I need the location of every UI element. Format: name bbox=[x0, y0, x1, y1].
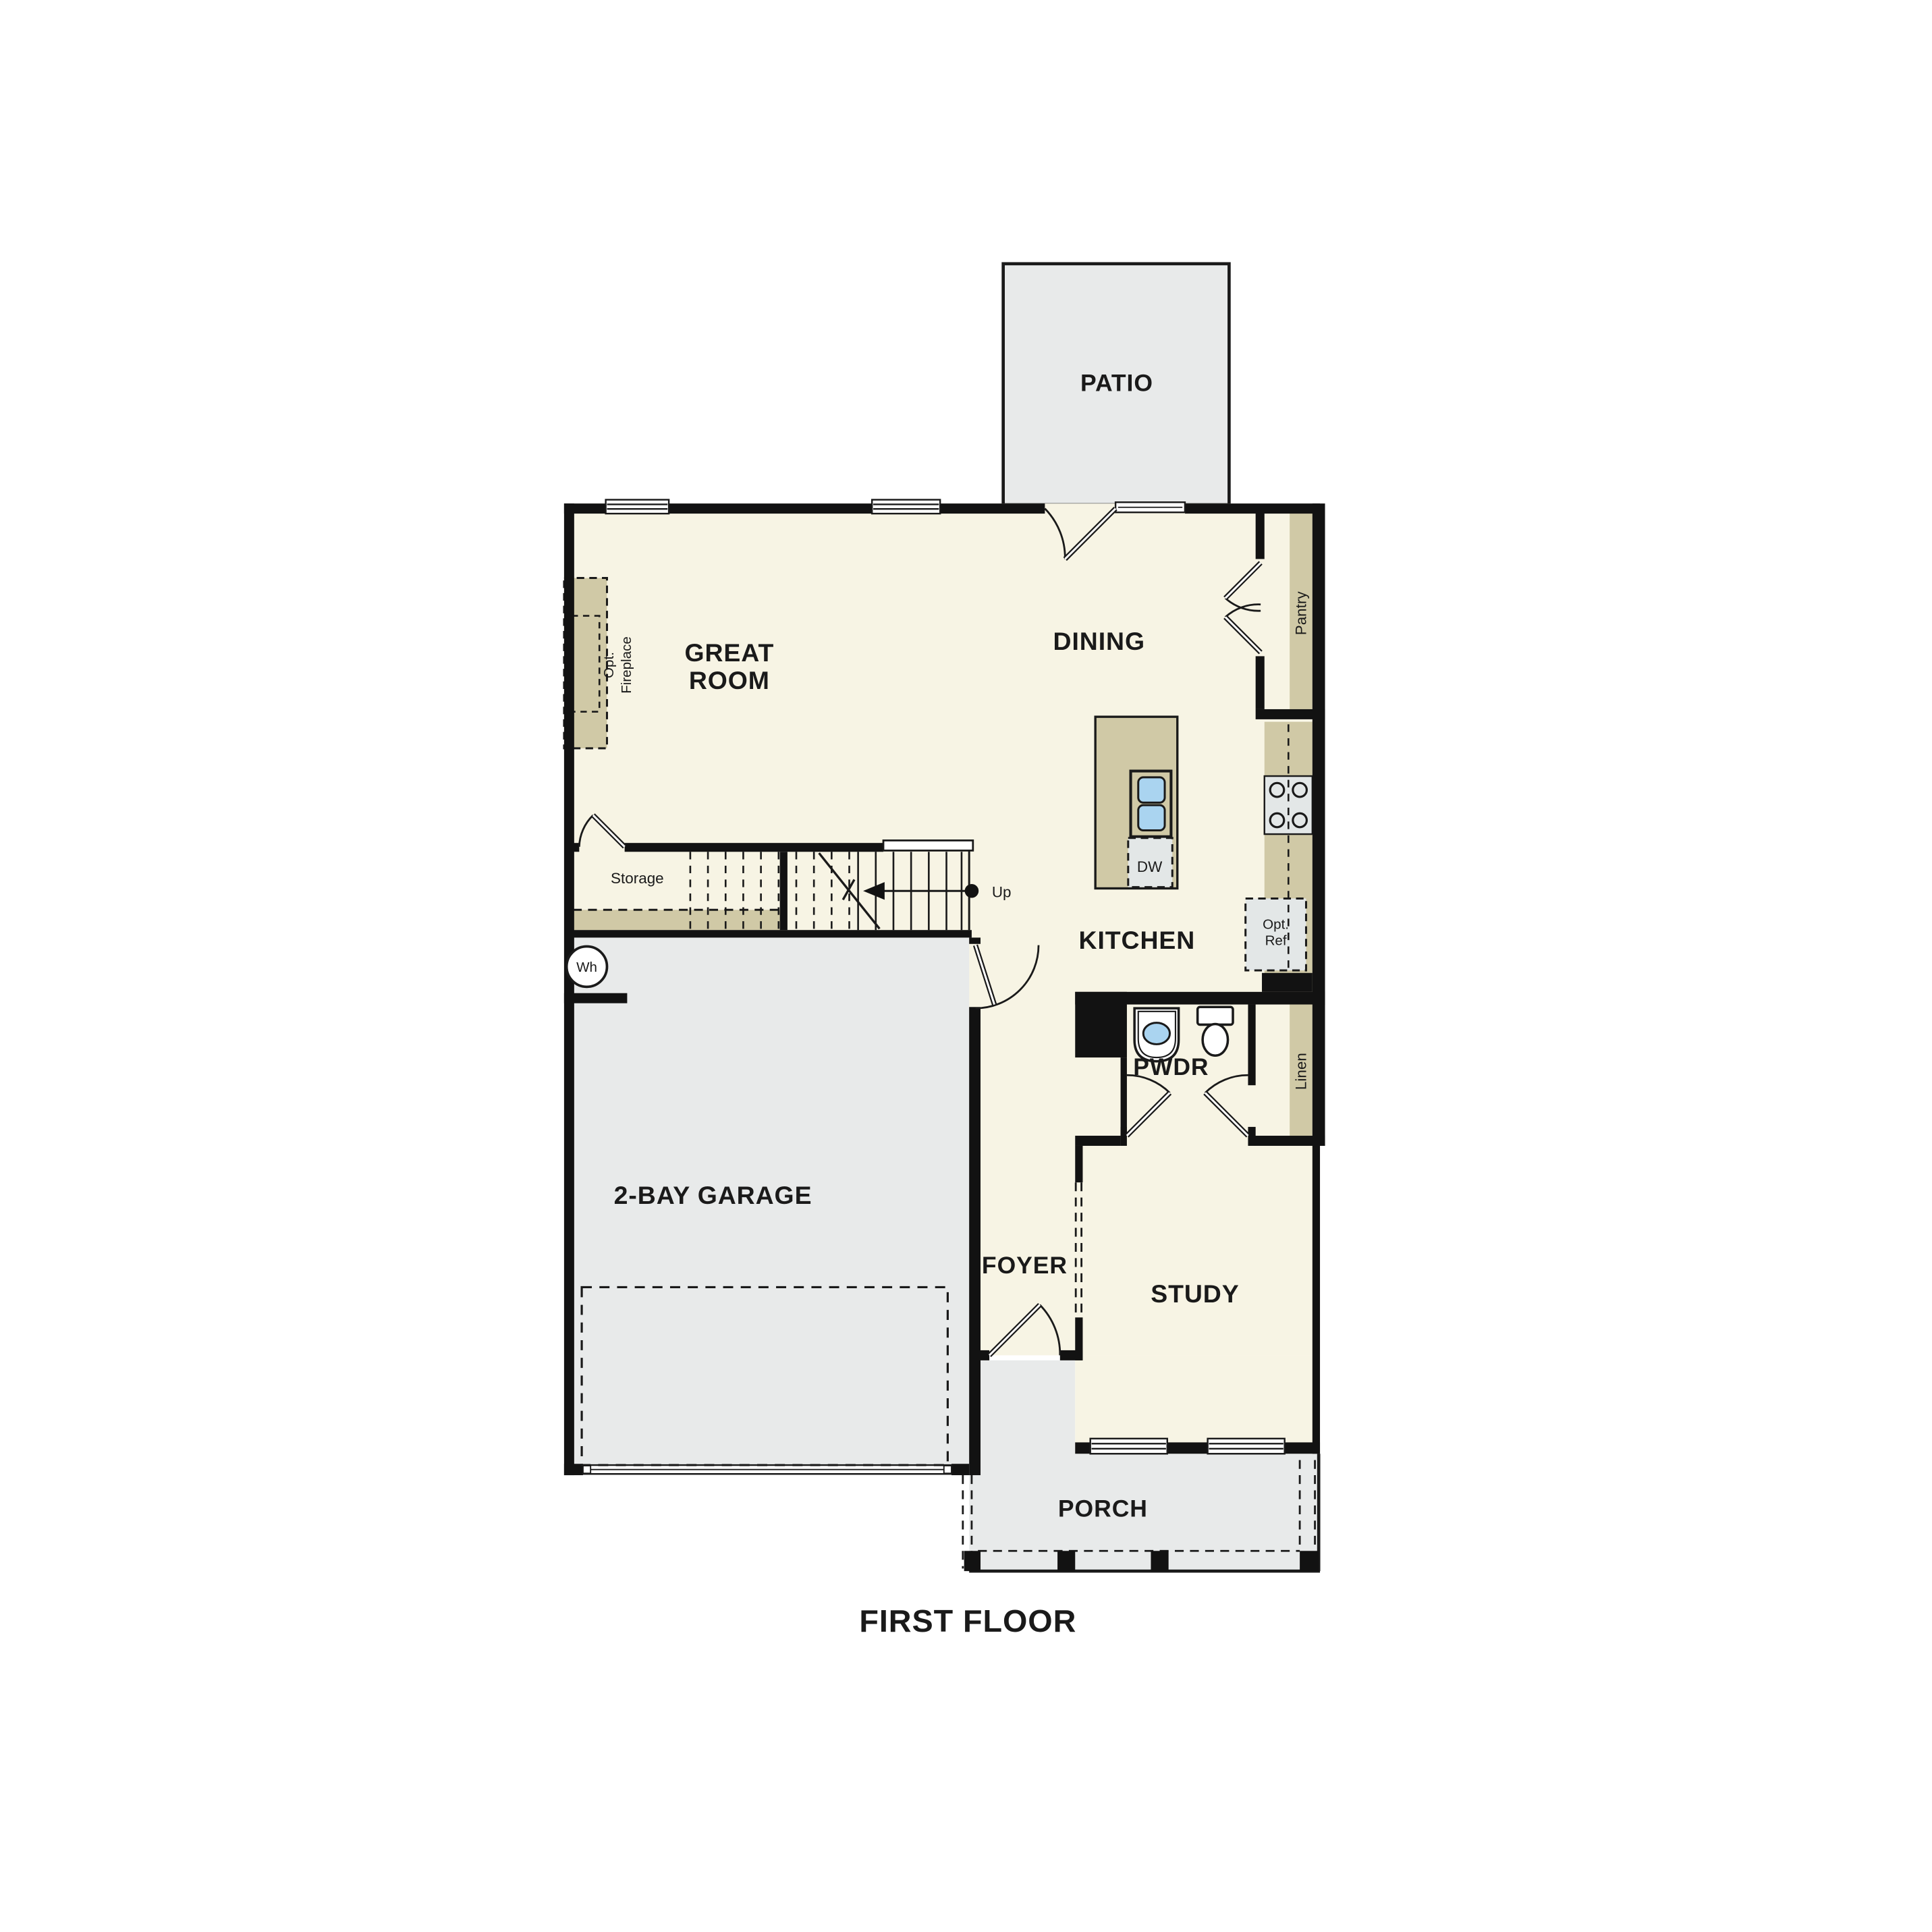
dishwasher-label: DW bbox=[1137, 858, 1163, 875]
garage-label: 2-BAY GARAGE bbox=[614, 1181, 812, 1209]
storage-shelf bbox=[573, 910, 780, 930]
stairs-up-label: Up bbox=[992, 884, 1012, 901]
opt-fireplace-label-line1: Opt. bbox=[601, 652, 617, 678]
window-study-right bbox=[1208, 1439, 1285, 1454]
wall-storage-stair-divider bbox=[780, 852, 788, 930]
wall-study-front-c bbox=[1285, 1442, 1320, 1454]
wall-chase bbox=[1075, 992, 1127, 1057]
wall-pwdr-left bbox=[1121, 1057, 1127, 1136]
water-heater-label: Wh bbox=[576, 960, 597, 975]
linen-label: Linen bbox=[1292, 1053, 1309, 1090]
wall-garage-door-jamb-right bbox=[951, 1464, 969, 1475]
wall-pantry-left-lower bbox=[1256, 656, 1265, 709]
sink-basin-icon bbox=[1138, 777, 1165, 802]
wall-front-right bbox=[1060, 1350, 1083, 1360]
window-dining bbox=[872, 500, 940, 514]
wall-pwdr-right bbox=[1248, 1005, 1255, 1086]
wall-garage-door-jamb-left bbox=[564, 1464, 583, 1475]
wall-study-left-upper bbox=[1075, 1146, 1082, 1182]
wall-top-right bbox=[1185, 503, 1320, 514]
wall-front-left bbox=[972, 1350, 989, 1360]
wall-stub-opt-ref bbox=[1262, 973, 1313, 992]
wall-water-heater-nook bbox=[564, 993, 628, 1003]
wall-garage-right bbox=[969, 1007, 981, 1475]
wall-pantry-left-upper bbox=[1256, 512, 1265, 559]
wall-garage-right-stub bbox=[969, 937, 981, 943]
stair-landing-edge bbox=[883, 840, 973, 850]
porch-label: PORCH bbox=[1058, 1495, 1148, 1522]
foyer-label: FOYER bbox=[982, 1252, 1068, 1279]
window-study-left bbox=[1091, 1439, 1167, 1454]
kitchen-label: KITCHEN bbox=[1079, 926, 1196, 954]
wall-storage-top-stub bbox=[573, 843, 579, 852]
pwdr-label: PWDR bbox=[1133, 1053, 1209, 1080]
patio-label: PATIO bbox=[1080, 370, 1153, 397]
wall-study-front-b bbox=[1167, 1442, 1208, 1454]
porch-post-icon bbox=[1057, 1551, 1075, 1571]
opt-ref-label-line2: Ref bbox=[1265, 933, 1287, 949]
wall-pwdr-south-left bbox=[1075, 1136, 1120, 1146]
wall-right-upper bbox=[1313, 503, 1325, 1146]
dining-label: DINING bbox=[1053, 627, 1145, 655]
great-room-label-line2: ROOM bbox=[689, 666, 770, 694]
opt-fireplace-label-line2: Fireplace bbox=[619, 636, 634, 694]
wall-left bbox=[564, 503, 574, 1475]
opt-ref-label-line1: Opt. bbox=[1263, 916, 1289, 932]
porch-post-icon bbox=[964, 1551, 981, 1571]
wall-linen-south bbox=[1254, 1136, 1325, 1146]
wall-storage-top bbox=[625, 843, 883, 852]
window-great-room bbox=[606, 500, 669, 514]
study-label: STUDY bbox=[1151, 1279, 1239, 1308]
storage-label: Storage bbox=[611, 870, 664, 887]
wall-pantry-bottom bbox=[1256, 709, 1325, 719]
up-arrow-origin-dot bbox=[965, 884, 979, 898]
floor-plan-canvas: PATIO GREAT ROOM DINING KITCHEN 2-BAY GA… bbox=[0, 0, 1932, 1932]
wall-stairs-bottom bbox=[573, 930, 972, 937]
sink-basin-icon bbox=[1138, 805, 1165, 830]
first-floor-label: FIRST FLOOR bbox=[859, 1603, 1076, 1638]
great-room-label-line1: GREAT bbox=[684, 638, 774, 667]
wall-study-front-a bbox=[1075, 1442, 1090, 1454]
porch-post-icon bbox=[1300, 1551, 1319, 1571]
garage-door bbox=[583, 1465, 951, 1474]
wall-study-right bbox=[1313, 1146, 1320, 1454]
pantry-label: Pantry bbox=[1292, 591, 1309, 636]
wall-pwdr-door-jamb-left bbox=[1121, 1127, 1127, 1146]
porch-post-icon bbox=[1151, 1551, 1168, 1571]
